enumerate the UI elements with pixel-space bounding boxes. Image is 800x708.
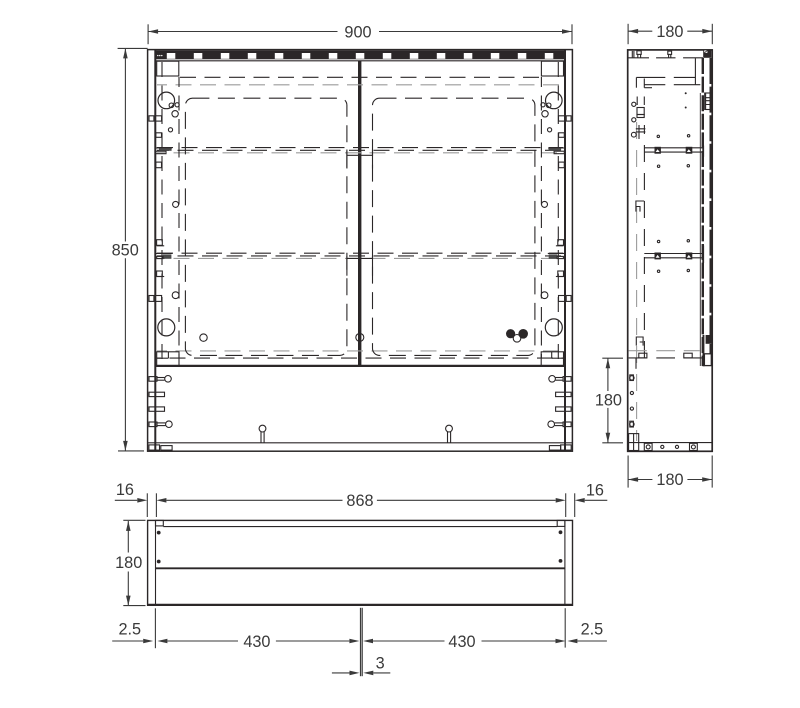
- svg-text:430: 430: [448, 633, 475, 651]
- svg-text:180: 180: [595, 391, 622, 409]
- svg-text:430: 430: [243, 633, 270, 651]
- svg-text:868: 868: [346, 492, 373, 510]
- svg-text:850: 850: [112, 242, 139, 260]
- svg-text:2.5: 2.5: [118, 621, 141, 639]
- svg-text:180: 180: [115, 554, 142, 572]
- svg-text:16: 16: [586, 481, 604, 499]
- svg-text:16: 16: [116, 481, 134, 499]
- svg-text:3: 3: [376, 655, 385, 673]
- svg-text:180: 180: [656, 471, 683, 489]
- svg-text:2.5: 2.5: [581, 621, 604, 639]
- svg-text:180: 180: [656, 23, 683, 41]
- svg-text:900: 900: [344, 23, 371, 41]
